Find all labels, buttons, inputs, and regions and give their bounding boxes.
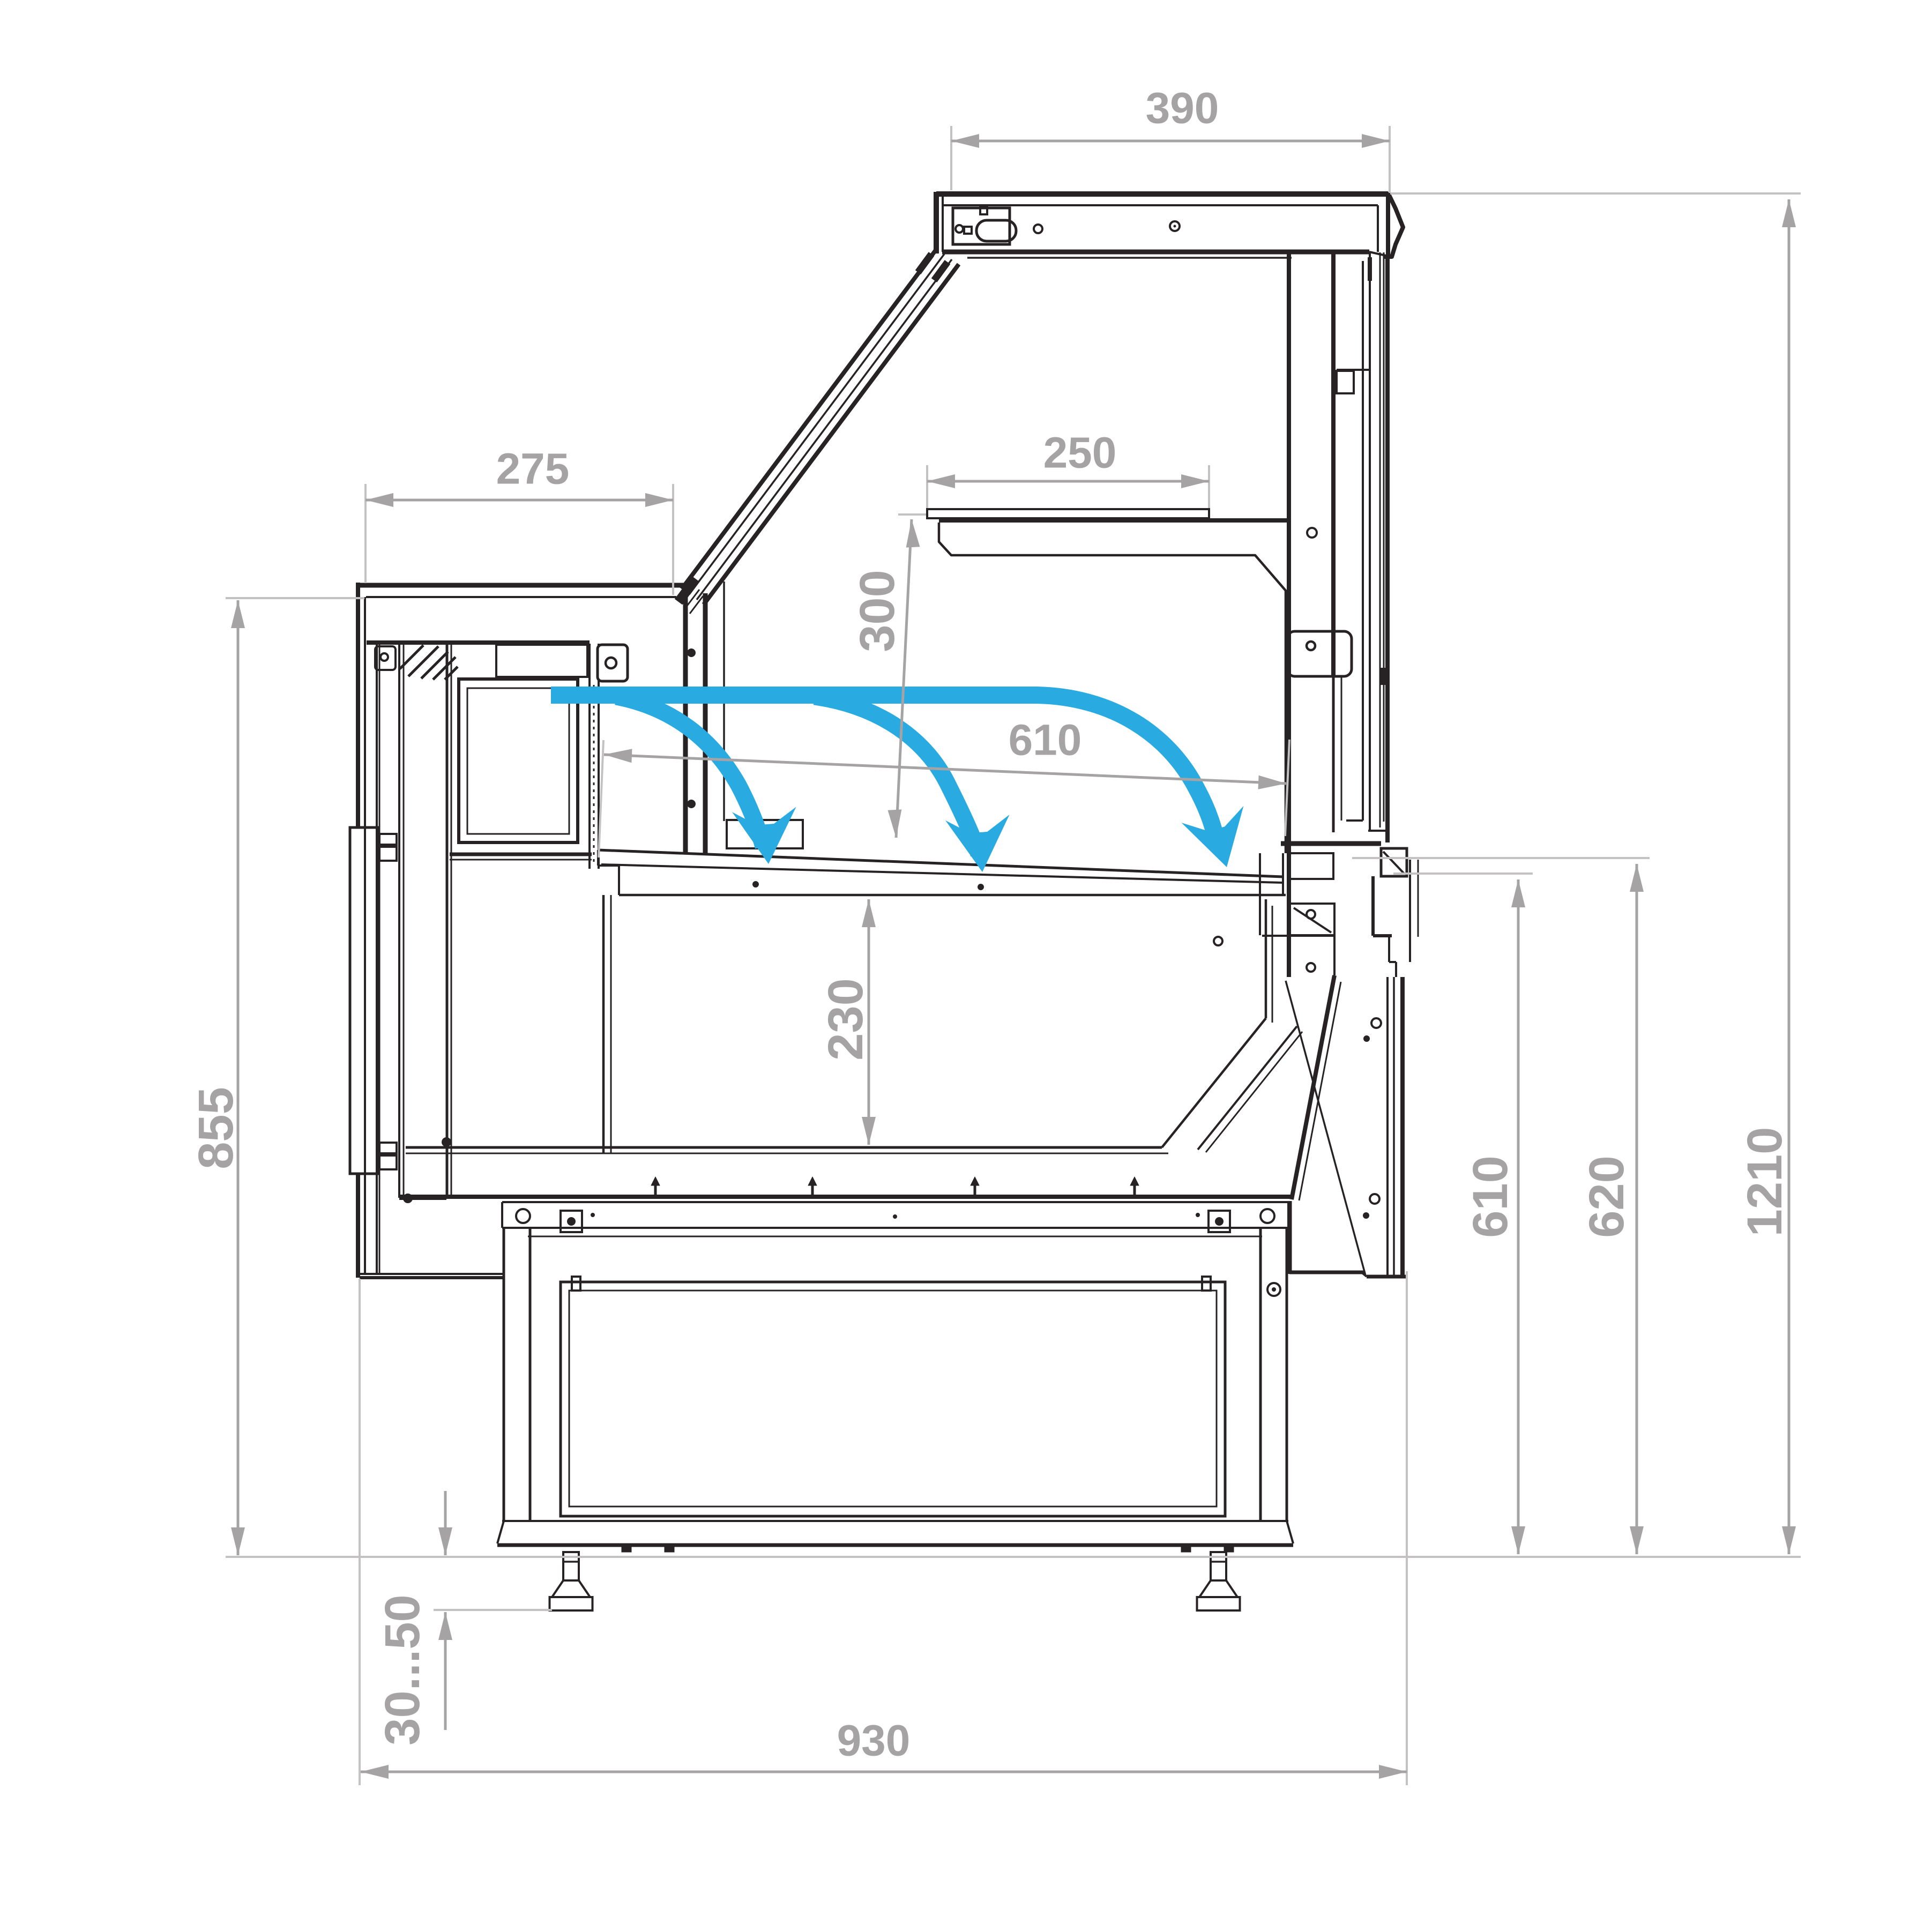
svg-text:855: 855	[189, 1087, 243, 1169]
svg-text:275: 275	[496, 445, 570, 494]
svg-text:620: 620	[1579, 1155, 1634, 1238]
svg-text:610: 610	[1009, 716, 1082, 765]
svg-text:300: 300	[850, 570, 905, 652]
svg-text:1210: 1210	[1737, 1127, 1792, 1237]
svg-text:30...50: 30...50	[375, 1594, 430, 1745]
svg-text:250: 250	[1043, 429, 1117, 478]
svg-text:930: 930	[837, 1717, 911, 1765]
svg-text:610: 610	[1463, 1155, 1518, 1238]
svg-text:390: 390	[1146, 84, 1219, 133]
svg-text:230: 230	[818, 978, 873, 1061]
